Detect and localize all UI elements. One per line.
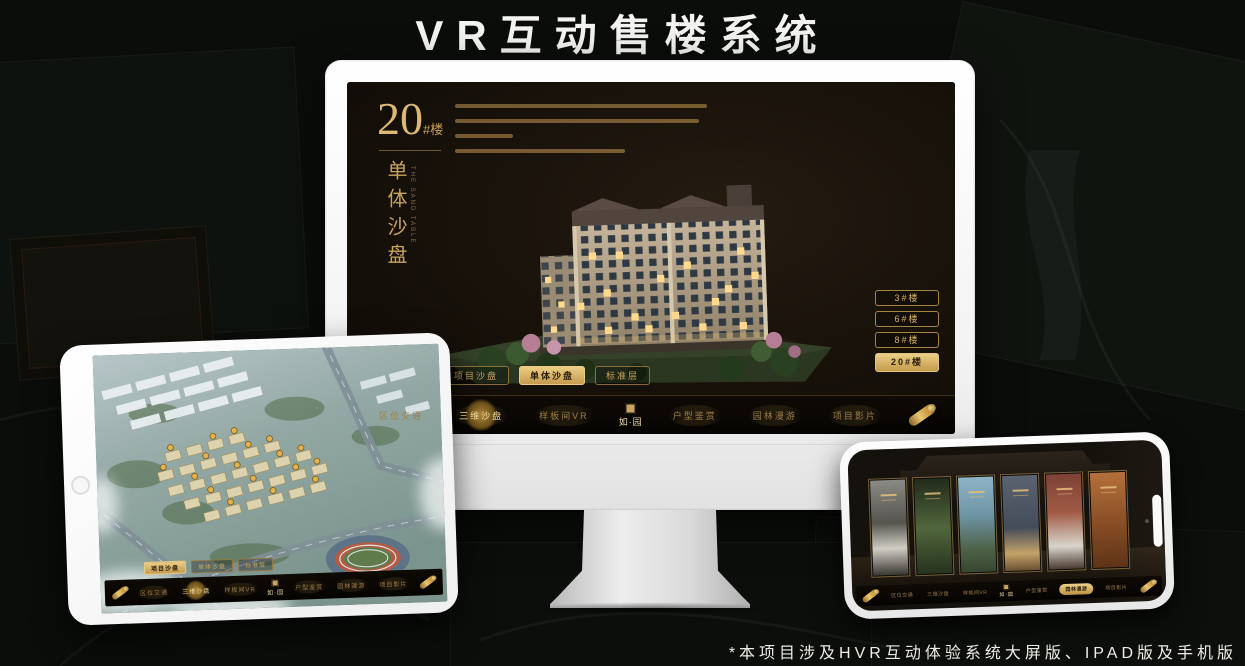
gallery-panel-1[interactable] (868, 477, 910, 577)
tablet-view-tab-floor[interactable]: 标准层 (238, 558, 273, 572)
nav-item-garden[interactable]: 园林漫游 (747, 405, 803, 426)
scroll-menu-icon[interactable] (111, 585, 129, 601)
phone-nav-floorplan[interactable]: 户型鉴赏 (1023, 584, 1049, 596)
gallery-panel-2[interactable] (912, 476, 954, 576)
monitor-stand (550, 510, 750, 608)
floor-button-3[interactable]: 3#楼 (875, 290, 939, 306)
gallery-panel-5[interactable] (1044, 471, 1086, 571)
building-number: 20 (377, 93, 423, 144)
tablet-nav-floorplan[interactable]: 户型鉴赏 (292, 579, 326, 593)
tablet-nav-location[interactable]: 区位交通 (137, 585, 171, 599)
scroll-menu-icon[interactable] (861, 588, 879, 604)
scroll-menu-icon[interactable] (907, 402, 937, 427)
view-tab-floor[interactable]: 标准层 (595, 366, 650, 385)
seal-icon (272, 579, 279, 586)
phone-nav-vr[interactable]: 样板间VR (961, 586, 990, 598)
nav-item-vr[interactable]: 样板间VR (533, 405, 595, 426)
floor-button-8[interactable]: 8#楼 (875, 332, 939, 348)
tablet-view-tab-single[interactable]: 单体沙盘 (191, 559, 233, 573)
tablet-view-tab-project[interactable]: 项目沙盘 (144, 561, 186, 575)
gallery-panel-4[interactable] (1000, 473, 1042, 573)
floor-button-6[interactable]: 6#楼 (875, 311, 939, 327)
phone-nav-location[interactable]: 区位交通 (889, 589, 915, 601)
floor-button-group: 3#楼 6#楼 8#楼 20#楼 (875, 290, 939, 372)
seal-icon (1003, 584, 1009, 590)
tablet-screen: 项目沙盘 单体沙盘 标准层 区位交通 三维沙盘 样板间VR 如·园 户型鉴赏 园… (93, 344, 448, 614)
page-title: VR互动售楼系统 (0, 2, 1245, 63)
scroll-menu-icon[interactable] (1139, 578, 1157, 594)
building-number-suffix: #楼 (423, 122, 443, 137)
phone-device: 区位交通 三维沙盘 样板间VR 如·园 户型鉴赏 园林漫游 项目影片 (839, 431, 1175, 619)
nav-item-film[interactable]: 项目影片 (827, 405, 883, 426)
tablet-nav-film[interactable]: 项目影片 (376, 576, 410, 590)
tablet-nav-sandtable[interactable]: 三维沙盘 (179, 583, 213, 597)
phone-screen: 区位交通 三维沙盘 样板间VR 如·园 户型鉴赏 园林漫游 项目影片 (847, 440, 1166, 612)
description-text-lines (455, 104, 707, 164)
nav-item-floorplan[interactable]: 户型鉴赏 (667, 405, 723, 426)
gallery-panel-3[interactable] (956, 474, 998, 574)
view-tab-single[interactable]: 单体沙盘 (519, 366, 585, 385)
tablet-device: 项目沙盘 单体沙盘 标准层 区位交通 三维沙盘 样板间VR 如·园 户型鉴赏 园… (59, 332, 459, 625)
poster: VR互动售楼系统 20#楼 单体沙盘 THE SAND TABLE (0, 0, 1245, 666)
section-subtitle-en: THE SAND TABLE (409, 166, 415, 244)
view-tab-group: 项目沙盘 单体沙盘 标准层 (443, 366, 650, 385)
brand-logo: 如·园 (267, 579, 285, 597)
footnote-text: *本项目涉及HVR互动体验系统大屏版、IPAD版及手机版 (729, 639, 1237, 663)
heading-divider (379, 150, 441, 151)
phone-camera-dot (1145, 519, 1149, 523)
building-render (419, 168, 834, 393)
seal-icon (625, 403, 636, 414)
phone-nav-film[interactable]: 项目影片 (1103, 581, 1129, 593)
tablet-home-button[interactable] (71, 475, 91, 495)
view-tab-project[interactable]: 项目沙盘 (443, 366, 509, 385)
page-heading: 20#楼 (377, 96, 443, 142)
monitor-stand-shadow (520, 602, 780, 616)
scroll-menu-icon[interactable] (419, 574, 437, 590)
phone-nav-sandtable[interactable]: 三维沙盘 (925, 587, 951, 599)
gallery-panel-6[interactable] (1088, 470, 1130, 570)
brand-logo: 如·园 (999, 584, 1014, 599)
section-title-vertical: 单体沙盘 (381, 160, 410, 272)
tablet-nav-garden[interactable]: 园林漫游 (334, 578, 368, 592)
phone-notch (1152, 494, 1163, 546)
tablet-nav-vr[interactable]: 样板间VR (221, 582, 259, 596)
floor-button-20[interactable]: 20#楼 (875, 353, 939, 372)
phone-nav-garden[interactable]: 园林漫游 (1059, 583, 1093, 595)
nav-item-sandtable[interactable]: 三维沙盘 (453, 405, 509, 426)
brand-logo: 如·园 (619, 403, 643, 428)
scene-gallery (868, 470, 1130, 578)
